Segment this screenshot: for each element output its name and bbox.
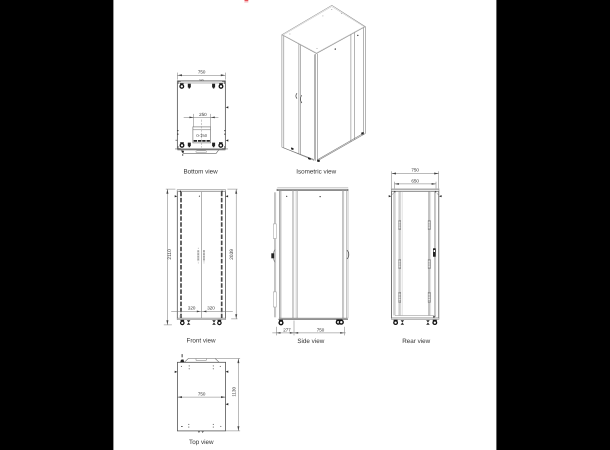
svg-text:750: 750	[198, 70, 206, 75]
svg-text:Bottom view: Bottom view	[183, 169, 218, 176]
svg-text:2110: 2110	[167, 249, 173, 260]
svg-text:Top view: Top view	[189, 439, 214, 446]
svg-text:320: 320	[188, 306, 196, 311]
svg-text:277: 277	[283, 328, 291, 333]
svg-text:0-150: 0-150	[196, 133, 207, 138]
svg-text:Front view: Front view	[186, 338, 215, 345]
svg-text:750: 750	[411, 168, 419, 173]
svg-text:320: 320	[207, 306, 215, 311]
svg-text:2039: 2039	[229, 249, 235, 260]
svg-text:Side view: Side view	[297, 338, 324, 345]
svg-text:1130: 1130	[232, 386, 237, 396]
svg-text:650: 650	[411, 178, 419, 183]
svg-text:Rear view: Rear view	[402, 338, 430, 345]
svg-text:750: 750	[317, 328, 325, 333]
svg-text:750: 750	[198, 391, 206, 396]
svg-text:5x5: 5x5	[199, 78, 204, 82]
svg-text:Isometric view: Isometric view	[296, 169, 336, 176]
svg-text:250: 250	[199, 112, 207, 117]
